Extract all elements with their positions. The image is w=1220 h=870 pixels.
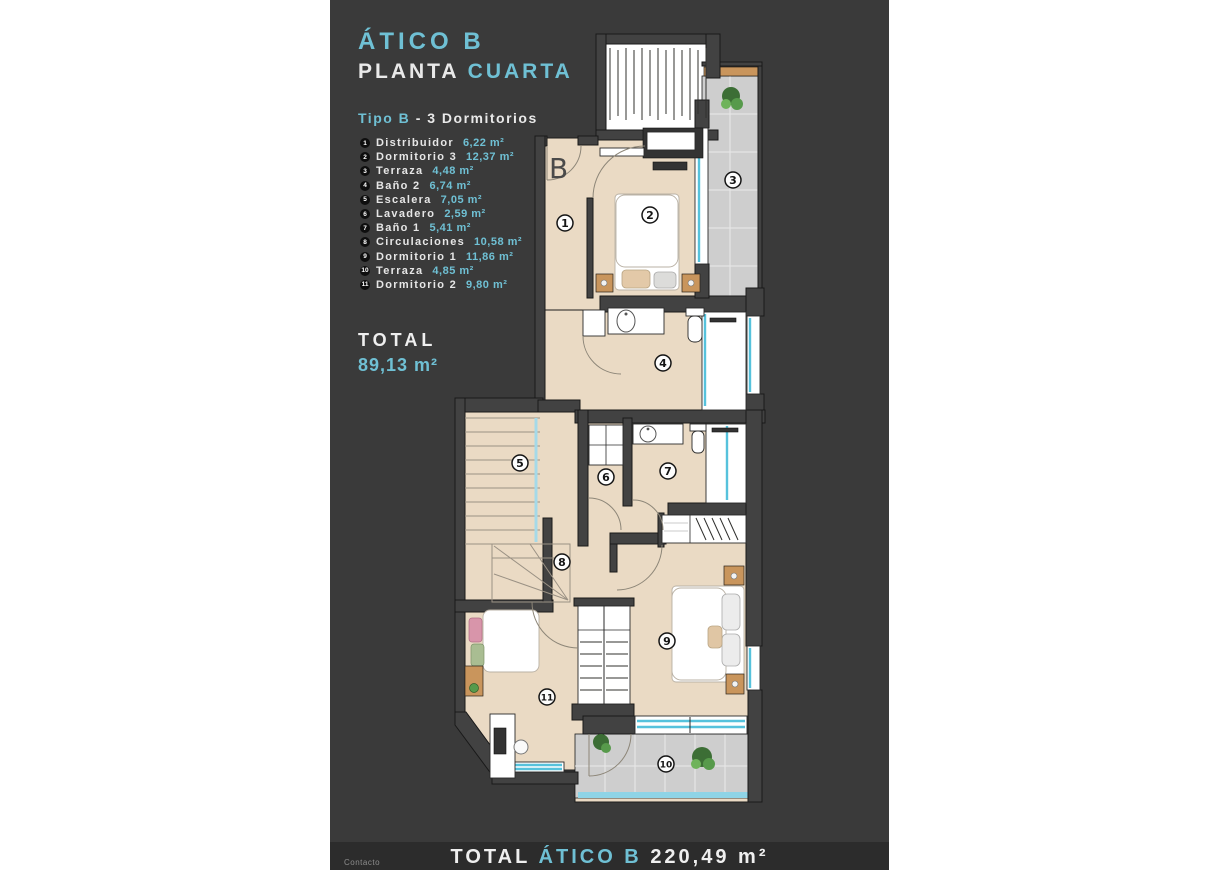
footer-total-name: ÁTICO B — [539, 846, 642, 868]
wall-stairs-right — [578, 410, 588, 546]
terrace3-parapet-right — [758, 64, 762, 302]
svg-text:7: 7 — [664, 465, 672, 478]
plant-room11 — [470, 684, 479, 693]
wall-lav-bath1 — [623, 418, 632, 506]
closet-room9 — [662, 515, 746, 543]
wall-terrace10-left — [583, 716, 635, 734]
svg-text:5: 5 — [516, 457, 524, 470]
room-label-11: 11 — [539, 689, 555, 705]
wall-window-a — [695, 100, 709, 128]
svg-text:4: 4 — [659, 357, 667, 370]
stool-room11 — [514, 740, 528, 754]
wall-closet-left — [596, 34, 606, 136]
room-label-6: 6 — [598, 469, 614, 485]
wall-right-bath-top — [746, 288, 764, 316]
wall-right-mid — [746, 410, 762, 646]
legend-num-badge: 10 — [360, 266, 370, 276]
door-leaf-room2 — [600, 148, 644, 156]
wall-band-left — [455, 398, 543, 412]
wall-left-lower — [455, 398, 465, 720]
legend-label: Escalera — [376, 194, 432, 206]
entrance-letter: B — [549, 152, 568, 185]
towel-bar-bath1 — [712, 428, 738, 432]
wardrobe-middle — [574, 598, 634, 704]
legend-label: Distribuidor — [376, 137, 454, 149]
wall-closet-top — [596, 34, 718, 44]
footer-contact: Contacto — [344, 858, 380, 867]
terrace10-edge-glassline — [578, 792, 758, 798]
legend-num-badge: 8 — [360, 237, 370, 247]
sliding-door-terrace10 — [635, 716, 747, 734]
wall-entry-stub-right — [578, 136, 598, 145]
legend-num-badge: 3 — [360, 166, 370, 176]
legend-num-badge: 5 — [360, 195, 370, 205]
wall-room1-room2 — [587, 198, 593, 298]
wall-right-low — [748, 690, 762, 802]
room-label-10: 10 — [658, 756, 674, 772]
door-leaf-bath2 — [583, 310, 605, 336]
legend-label: Baño 2 — [376, 180, 420, 192]
legend-label: Terraza — [376, 165, 423, 177]
legend-num-badge: 4 — [360, 181, 370, 191]
desk-room2-top — [647, 132, 695, 150]
wall-left-upper — [535, 136, 545, 412]
wall-band-mid — [538, 400, 580, 412]
wall-room9-stub — [610, 544, 617, 572]
wall-winder-right — [543, 518, 552, 602]
footer-total-value: 220,49 m² — [650, 846, 768, 868]
brochure-panel: ÁTICO B PLANTA CUARTA Tipo B - 3 Dormito… — [330, 0, 889, 870]
type-accent: Tipo B — [358, 110, 410, 126]
subtitle-plain: PLANTA — [358, 60, 459, 83]
room-label-9: 9 — [659, 633, 675, 649]
room-label-4: 4 — [655, 355, 671, 371]
total-label: TOTAL — [358, 330, 438, 351]
svg-text:2: 2 — [646, 209, 654, 222]
total-value: 89,13 m² — [358, 355, 438, 376]
legend-label: Lavadero — [376, 208, 435, 220]
legend-num-badge: 6 — [360, 209, 370, 219]
toilet-tank-bath1 — [690, 424, 706, 431]
room-label-8: 8 — [554, 554, 570, 570]
svg-text:8: 8 — [558, 556, 566, 569]
svg-text:11: 11 — [541, 694, 554, 704]
legend-num-badge: 9 — [360, 252, 370, 262]
wall-top-right — [706, 34, 720, 78]
legend-label: Dormitorio 2 — [376, 279, 457, 291]
lavadero-cabinets — [589, 425, 623, 465]
toilet-tank-bath2 — [686, 308, 704, 316]
shower-bath2 — [702, 312, 746, 410]
legend-label: Dormitorio 1 — [376, 251, 457, 263]
total-block: TOTAL 89,13 m² — [358, 330, 438, 376]
toilet-bath2 — [688, 316, 702, 342]
svg-text:9: 9 — [663, 635, 671, 648]
svg-text:3: 3 — [729, 174, 737, 187]
footer-band: TOTAL ÁTICO B 220,49 m² Contacto — [330, 842, 889, 870]
chair-room2 — [653, 162, 687, 170]
legend-num-badge: 7 — [360, 223, 370, 233]
legend-num-badge: 2 — [360, 152, 370, 162]
wall-under-bath1 — [668, 503, 754, 515]
footer-total-label: TOTAL — [451, 846, 530, 868]
legend-label: Dormitorio 3 — [376, 151, 457, 163]
towel-bar-bath2 — [710, 318, 736, 322]
svg-text:1: 1 — [561, 217, 569, 230]
room-label-3: 3 — [725, 172, 741, 188]
svg-text:10: 10 — [660, 761, 673, 771]
legend-num-badge: 11 — [360, 280, 370, 290]
legend-num-badge: 1 — [360, 138, 370, 148]
svg-text:6: 6 — [602, 471, 610, 484]
closet-top-interior — [598, 42, 708, 134]
room-label-1: 1 — [557, 215, 573, 231]
legend-label: Baño 1 — [376, 222, 420, 234]
monitor-room11 — [494, 728, 506, 754]
room-label-7: 7 — [660, 463, 676, 479]
room-label-5: 5 — [512, 455, 528, 471]
wall-band-right — [575, 410, 765, 423]
sink-counter-bath2 — [608, 308, 664, 334]
wall-right-bath-bottom — [746, 394, 764, 412]
footer-total: TOTAL ÁTICO B 220,49 m² — [330, 842, 889, 870]
legend-label: Terraza — [376, 265, 423, 277]
room-label-2: 2 — [642, 207, 658, 223]
floor-plan: B 1 2 3 4 5 6 7 8 9 10 11 — [450, 26, 772, 818]
toilet-bath1 — [692, 431, 704, 453]
